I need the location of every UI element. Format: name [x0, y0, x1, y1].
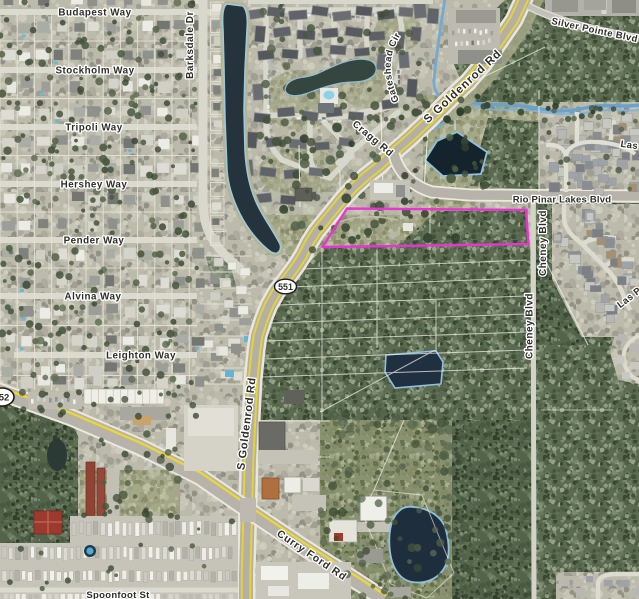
svg-text:Spoonfoot St: Spoonfoot St	[86, 590, 150, 599]
svg-text:Budapest Way: Budapest Way	[58, 8, 131, 19]
svg-text:551: 551	[278, 282, 293, 292]
svg-text:Barksdale Dr: Barksdale Dr	[185, 11, 196, 79]
svg-text:Rio Pinar Lakes Blvd: Rio Pinar Lakes Blvd	[513, 195, 612, 206]
svg-text:Alvina Way: Alvina Way	[65, 292, 122, 303]
svg-text:Cheney Blvd: Cheney Blvd	[525, 293, 536, 359]
svg-text:Stockholm Way: Stockholm Way	[55, 66, 134, 77]
svg-text:Leighton Way: Leighton Way	[106, 351, 176, 362]
svg-text:Hershey Way: Hershey Way	[61, 180, 128, 191]
svg-text:Pender Way: Pender Way	[64, 236, 125, 247]
svg-text:Cheney Blvd: Cheney Blvd	[538, 210, 549, 276]
svg-text:52: 52	[0, 393, 9, 404]
svg-text:Tripoli Way: Tripoli Way	[65, 123, 122, 134]
